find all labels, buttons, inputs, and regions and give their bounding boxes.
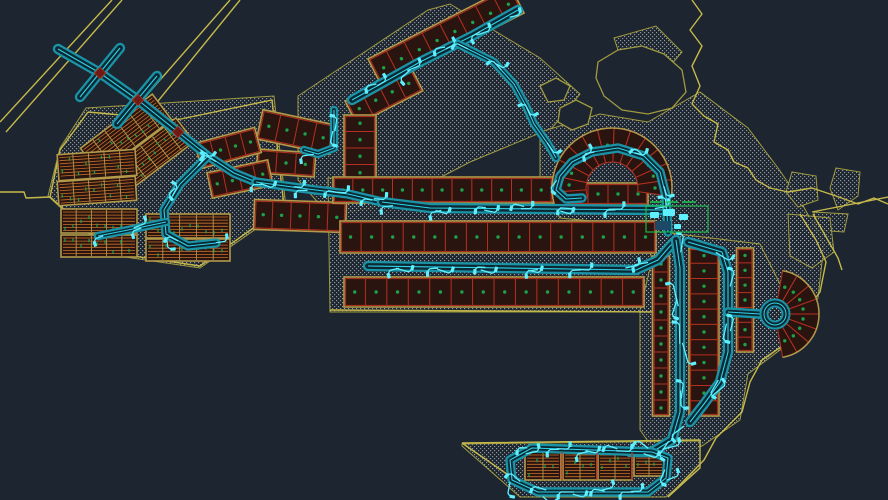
tree-dot	[644, 235, 647, 238]
tree-dot	[500, 188, 503, 191]
tree-dot	[517, 235, 520, 238]
tree-dot	[401, 188, 404, 191]
tree-dot	[659, 278, 662, 281]
tree-dot	[546, 290, 549, 293]
tree-dot	[353, 290, 356, 293]
lot-strip[interactable]	[254, 199, 347, 232]
tree-dot	[374, 290, 377, 293]
cad-canvas[interactable]	[0, 0, 888, 500]
road[interactable]	[728, 312, 760, 314]
tree-dot	[540, 188, 543, 191]
tree-dot	[358, 122, 361, 125]
tree-dot	[358, 155, 361, 158]
tree-dot	[616, 192, 619, 195]
tree-dot	[524, 290, 527, 293]
tree-dot	[702, 300, 705, 303]
tree-dot	[460, 188, 463, 191]
tree-dot	[801, 307, 804, 310]
tree-dot	[702, 330, 705, 333]
tree-dot	[480, 188, 483, 191]
tree-dot	[567, 183, 570, 186]
tree-dot	[475, 235, 478, 238]
tree-dot	[361, 188, 364, 191]
utility-structure-symbol	[650, 212, 659, 218]
tree-dot	[659, 358, 662, 361]
tree-dot	[798, 327, 801, 330]
lot-strip[interactable]	[344, 277, 644, 307]
tree-dot	[503, 290, 506, 293]
tree-dot	[460, 290, 463, 293]
tree-dot	[702, 346, 705, 349]
tree-dot	[798, 298, 801, 301]
tree-dot	[482, 290, 485, 293]
striped-lot-block[interactable]	[525, 452, 561, 480]
tree-dot	[358, 171, 361, 174]
tree-dot	[632, 290, 635, 293]
cad-viewport[interactable]	[0, 0, 888, 500]
tree-dot	[702, 315, 705, 318]
tree-dot	[659, 326, 662, 329]
pump-station-symbol	[655, 221, 671, 230]
tree-dot	[391, 235, 394, 238]
tree-dot	[567, 290, 570, 293]
tree-dot	[702, 284, 705, 287]
tree-dot	[659, 374, 662, 377]
tree-dot	[743, 254, 746, 257]
tree-dot	[349, 235, 352, 238]
tree-dot	[702, 269, 705, 272]
tree-dot	[792, 290, 795, 293]
tree-dot	[602, 235, 605, 238]
tree-dot	[702, 254, 705, 257]
tree-dot	[743, 343, 746, 346]
tree-dot	[433, 235, 436, 238]
tree-dot	[801, 317, 804, 320]
tree-dot	[417, 290, 420, 293]
tree-dot	[659, 294, 662, 297]
utility-structure-symbol	[663, 209, 675, 216]
tree-dot	[581, 235, 584, 238]
tree-dot	[439, 290, 442, 293]
tree-dot	[396, 290, 399, 293]
tree-dot	[370, 235, 373, 238]
tree-dot	[792, 334, 795, 337]
tree-dot	[636, 192, 639, 195]
tree-dot	[381, 188, 384, 191]
lot-strip[interactable]	[653, 256, 670, 416]
tree-dot	[421, 188, 424, 191]
tree-dot	[520, 188, 523, 191]
tree-dot	[454, 235, 457, 238]
tree-dot	[623, 235, 626, 238]
striped-lot-block[interactable]	[563, 452, 597, 480]
tree-dot	[702, 376, 705, 379]
tree-dot	[560, 235, 563, 238]
tree-dot	[653, 186, 656, 189]
tree-dot	[652, 174, 655, 177]
tree-dot	[702, 361, 705, 364]
tree-dot	[659, 390, 662, 393]
tree-dot	[659, 310, 662, 313]
tree-dot	[589, 290, 592, 293]
lot-strip[interactable]	[344, 115, 376, 181]
striped-lot-block[interactable]	[598, 452, 632, 480]
utility-structure-symbol	[679, 214, 688, 220]
utility-structure-symbol	[674, 224, 681, 229]
tree-dot	[743, 283, 746, 286]
tree-dot	[440, 188, 443, 191]
tree-dot	[659, 406, 662, 409]
tree-dot	[538, 235, 541, 238]
tree-dot	[412, 235, 415, 238]
tree-dot	[659, 342, 662, 345]
tree-dot	[496, 235, 499, 238]
tree-dot	[743, 269, 746, 272]
tree-dot	[358, 138, 361, 141]
tree-dot	[783, 339, 786, 342]
tree-dot	[743, 328, 746, 331]
lot-strip[interactable]	[737, 248, 754, 352]
striped-lot-block[interactable]	[57, 176, 136, 205]
lot-strip[interactable]	[340, 221, 656, 253]
tree-dot	[570, 172, 573, 175]
striped-lot-block[interactable]	[57, 149, 137, 180]
tree-dot	[743, 298, 746, 301]
tree-dot	[610, 290, 613, 293]
tree-dot	[783, 286, 786, 289]
tree-dot	[596, 192, 599, 195]
